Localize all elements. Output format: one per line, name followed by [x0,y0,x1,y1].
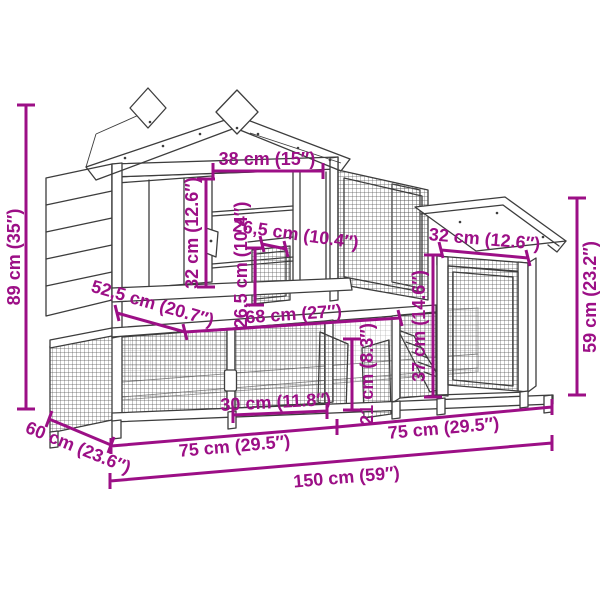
right-front-mesh [448,266,518,391]
dimension-label: 75 cm (29.5″) [387,413,500,443]
dimension-total-width: 150 cm (59″) [110,435,552,492]
vent-flap [206,228,218,257]
right-post-left [437,256,448,396]
dimension-base-left-width: 75 cm (29.5″) [111,419,337,461]
run-mesh-a [122,329,227,414]
run-left-mesh [50,334,112,433]
dimension-label: 37 cm (14.6″) [409,270,429,382]
hutch-dimension-diagram: 89 cm (35″) 38 cm (15″) 32 cm (12.6″) 26… [0,0,600,600]
dimension-label: 21 cm (8.3″) [357,323,377,425]
dimension-total-height: 89 cm (35″) [4,105,35,409]
roof-finial-left [130,88,166,128]
door-latch [225,370,237,391]
dimension-label: 59 cm (23.2″) [580,241,600,353]
dimension-label: 38 cm (15″) [219,149,316,169]
right-side-sliver [528,258,536,392]
dimension-label: 89 cm (35″) [4,209,24,306]
diagram-canvas: 89 cm (35″) 38 cm (15″) 32 cm (12.6″) 26… [0,0,600,600]
dimension-label: 75 cm (29.5″) [178,431,291,461]
front-door-panel [117,176,218,290]
right-post-right [518,262,528,392]
dimension-label: 150 cm (59″) [292,462,400,491]
run-door-post-right [392,315,400,403]
dimension-right-house-height: 59 cm (23.2″) [568,198,600,395]
dimension-label: 32 cm (12.6″) [182,177,202,289]
